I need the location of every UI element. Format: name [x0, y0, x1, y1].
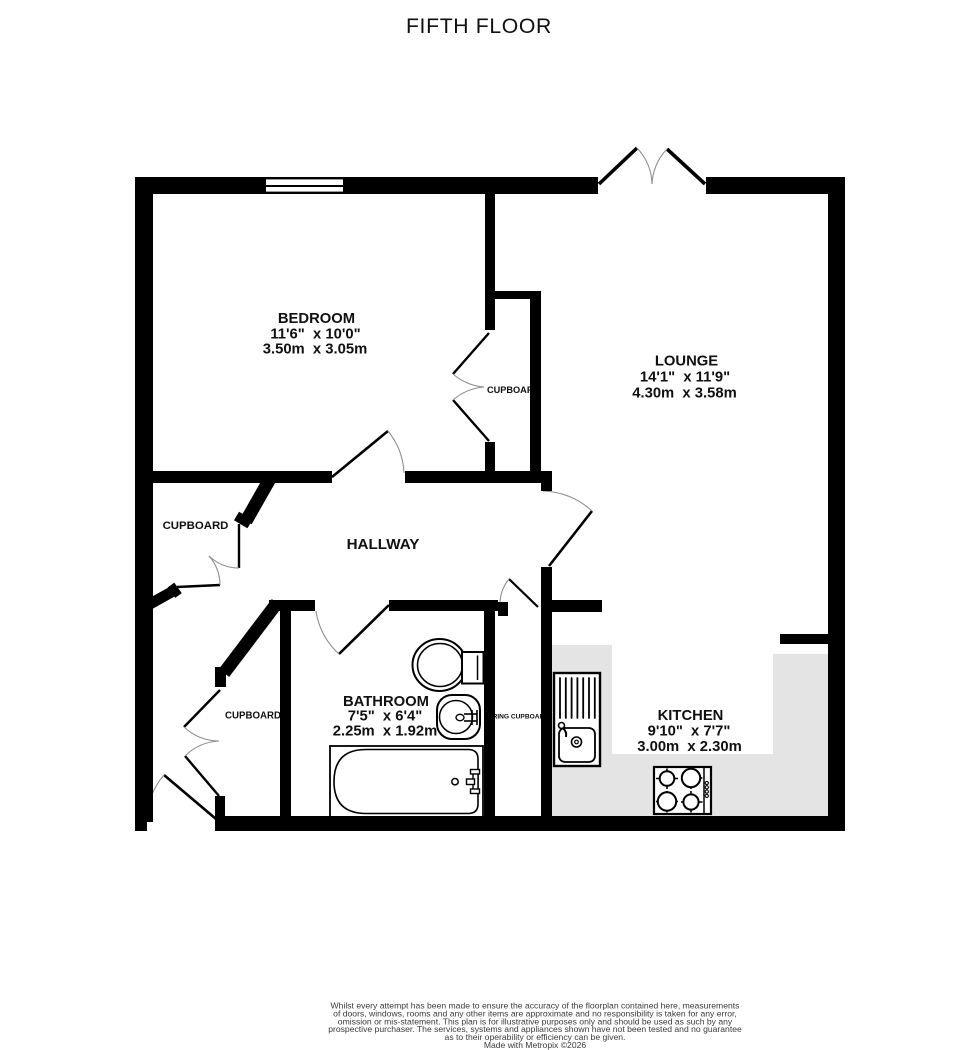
svg-text:BEDROOM: BEDROOM [278, 311, 355, 327]
svg-text:3.00m x 2.30m: 3.00m x 2.30m [637, 739, 741, 755]
svg-text:CUPBOARD: CUPBOARD [225, 711, 281, 722]
svg-text:11'6" x 10'0": 11'6" x 10'0" [270, 326, 360, 342]
svg-text:LOUNGE: LOUNGE [655, 354, 718, 370]
svg-text:7'5" x 6'4": 7'5" x 6'4" [348, 709, 423, 725]
svg-text:CUPBOARD: CUPBOARD [163, 520, 229, 532]
svg-text:2.25m x 1.92m: 2.25m x 1.92m [333, 724, 437, 740]
svg-text:4.30m x 3.58m: 4.30m x 3.58m [632, 386, 736, 402]
svg-text:AIRING CUPBOARD: AIRING CUPBOARD [486, 714, 549, 721]
svg-text:14'1" x 11'9": 14'1" x 11'9" [640, 370, 730, 386]
svg-text:FIFTH FLOOR: FIFTH FLOOR [406, 15, 552, 38]
svg-text:KITCHEN: KITCHEN [658, 708, 724, 724]
svg-text:9'10" x 7'7": 9'10" x 7'7" [648, 724, 731, 740]
svg-text:HALLWAY: HALLWAY [347, 536, 420, 553]
svg-text:Made with Metropix ©2026: Made with Metropix ©2026 [484, 1040, 587, 1050]
svg-text:3.50m x 3.05m: 3.50m x 3.05m [263, 342, 367, 358]
